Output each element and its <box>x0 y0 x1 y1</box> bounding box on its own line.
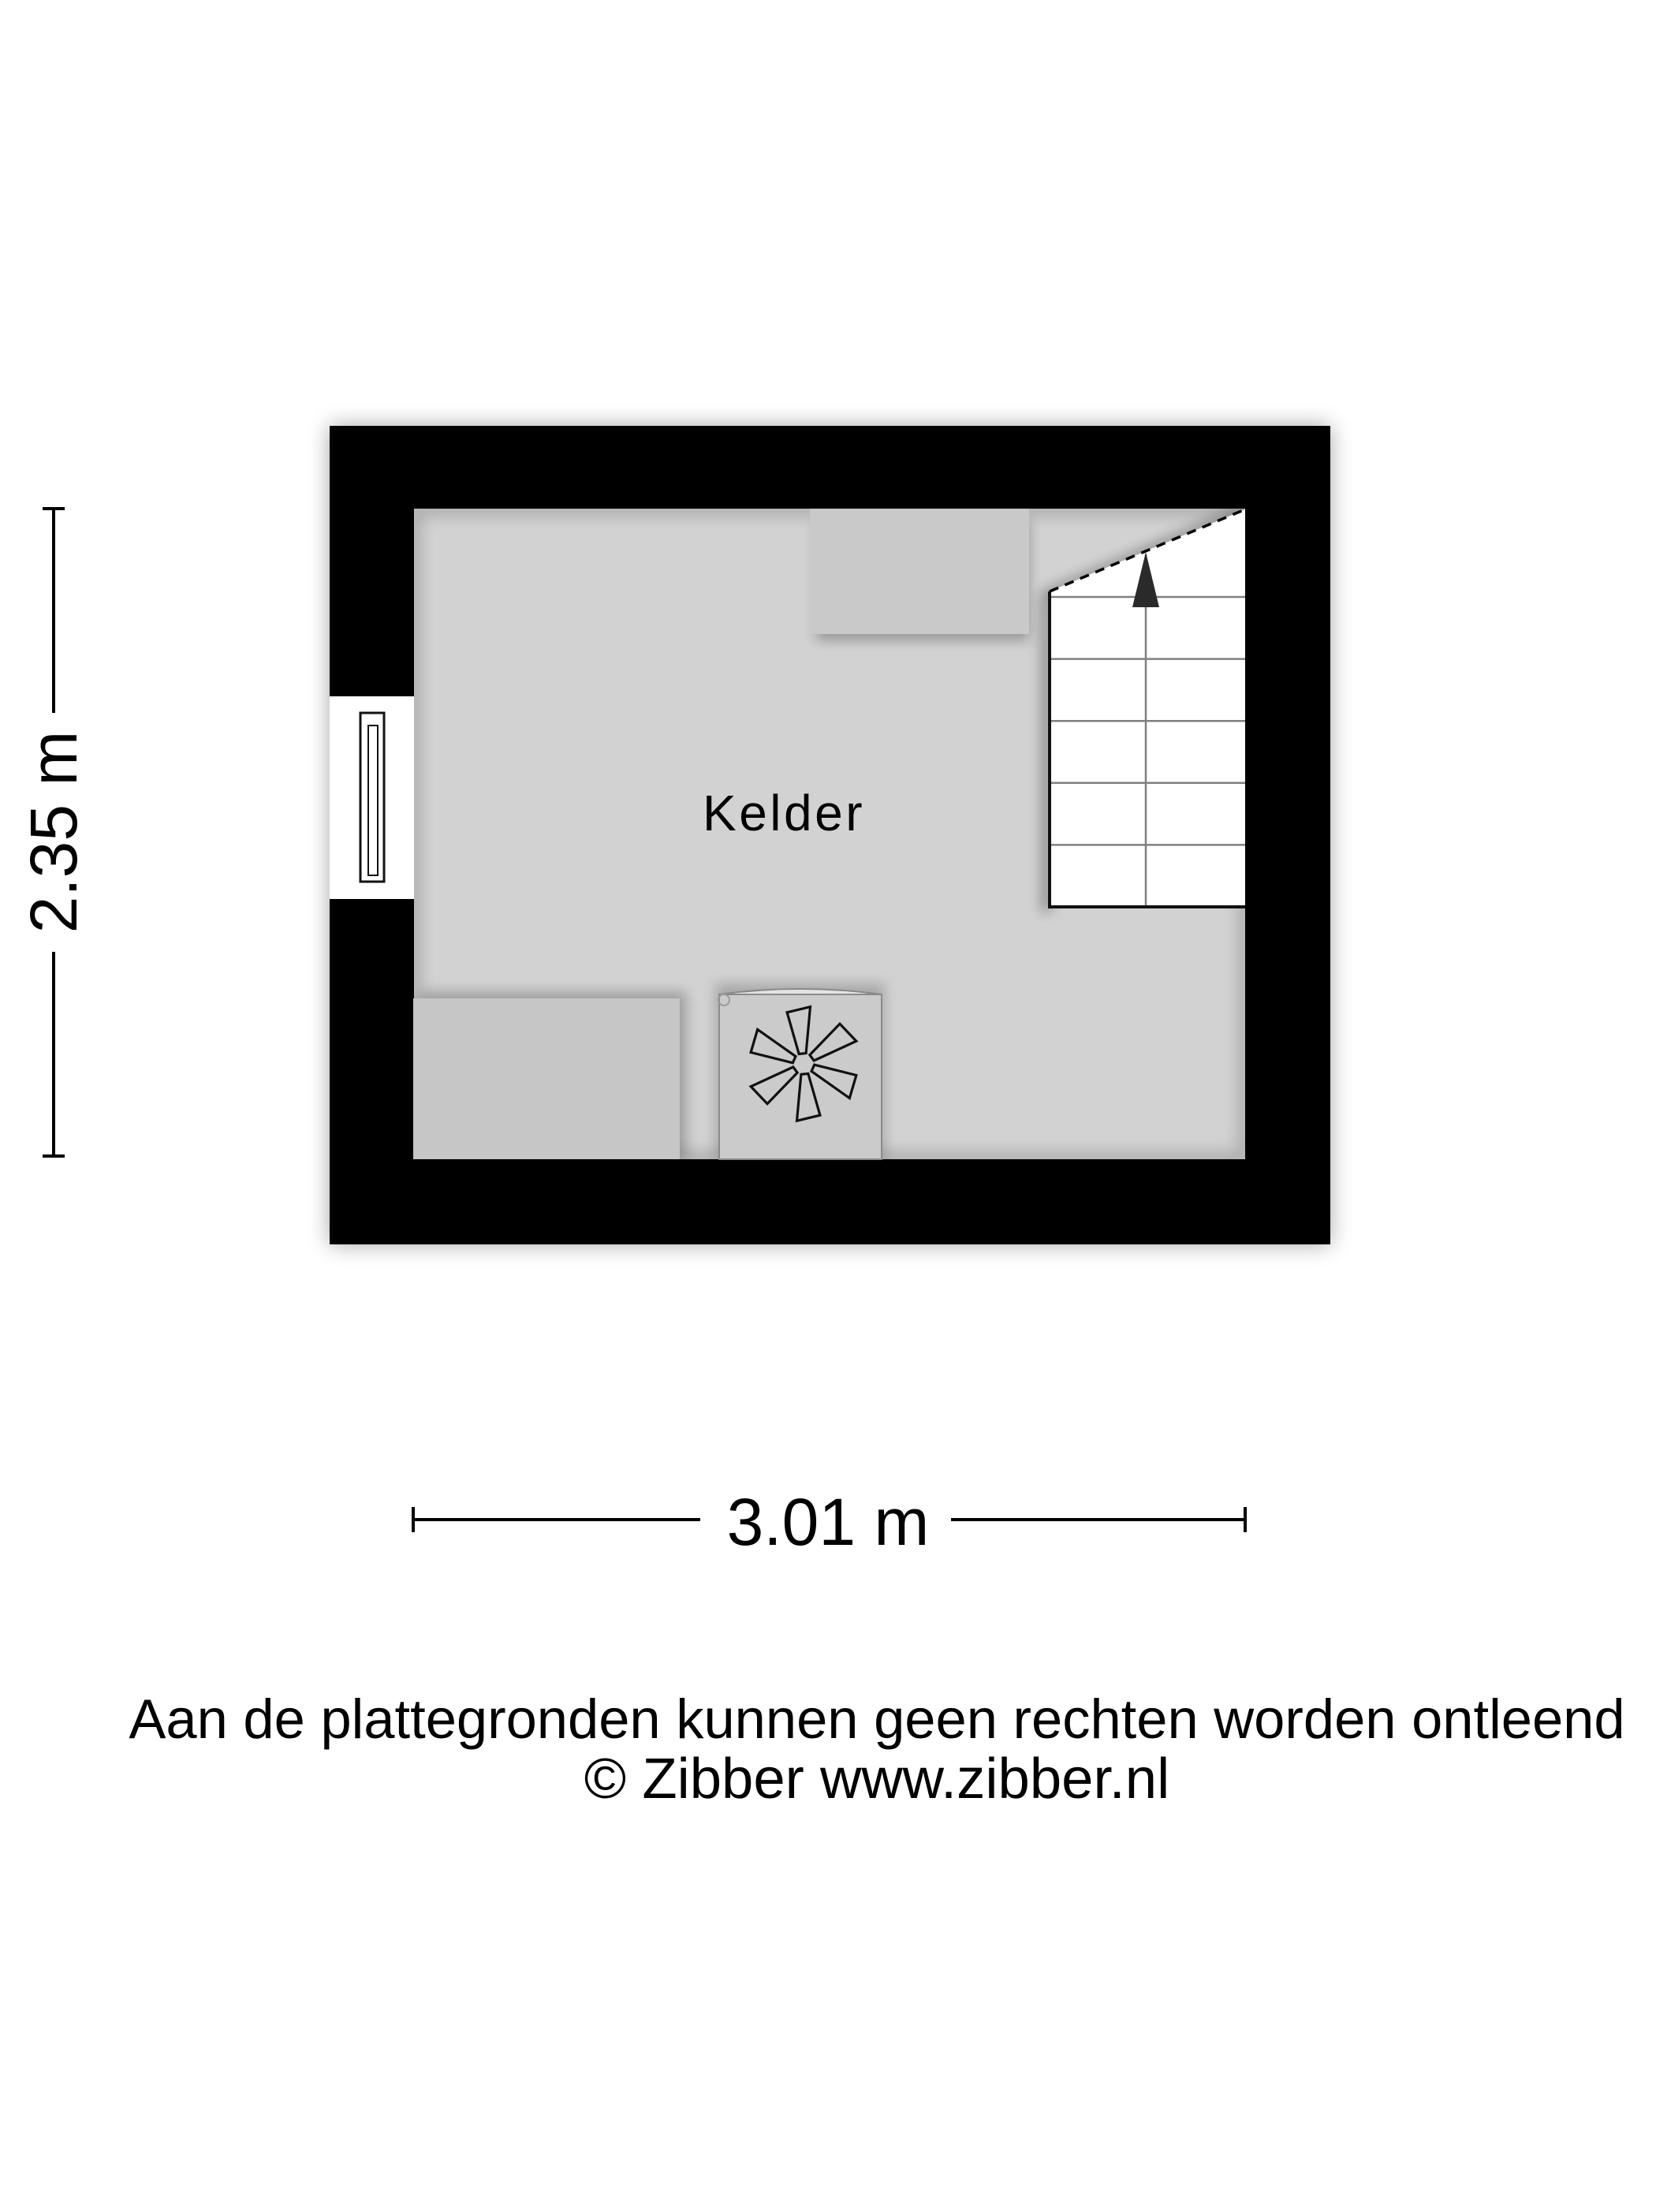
svg-text:Kelder: Kelder <box>703 785 865 841</box>
svg-text:2.35 m: 2.35 m <box>17 731 91 934</box>
svg-text:© Zibber www.zibber.nl: © Zibber www.zibber.nl <box>584 1747 1169 1811</box>
svg-text:3.01 m: 3.01 m <box>727 1485 930 1559</box>
svg-text:Aan de plattegronden kunnen ge: Aan de plattegronden kunnen geen rechten… <box>129 1688 1624 1750</box>
